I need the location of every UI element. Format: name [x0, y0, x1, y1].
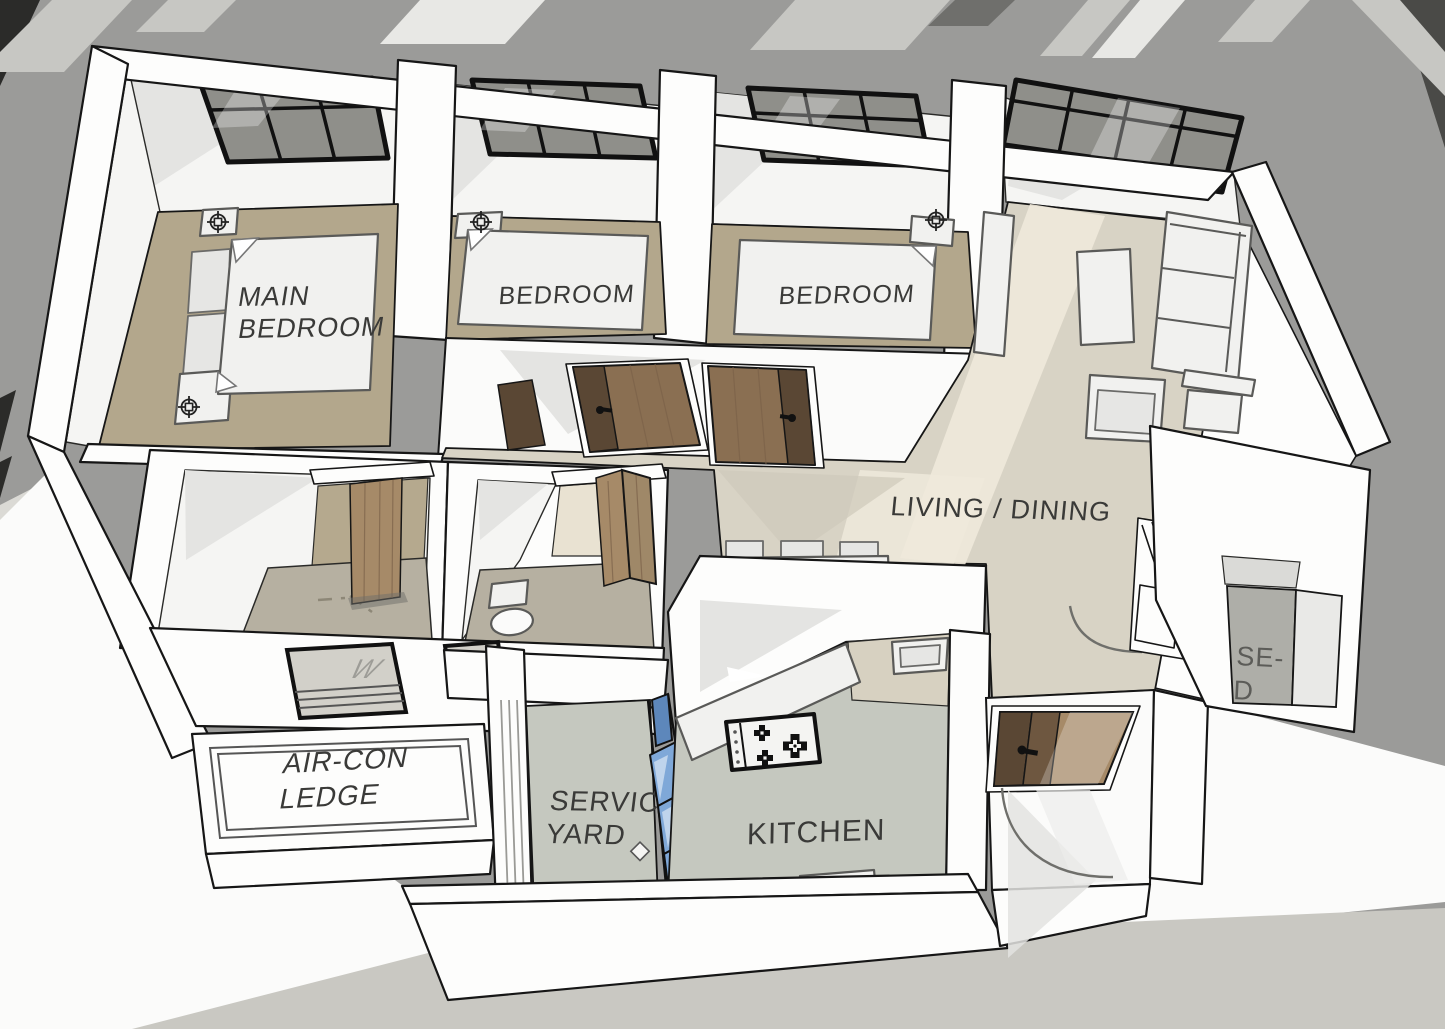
- bathroom-1-door: [348, 478, 408, 610]
- kitchen-sink: [892, 638, 948, 674]
- side-table: [1184, 390, 1242, 433]
- shelter-label-partial-1: SE-: [1236, 641, 1286, 673]
- bathroom-2: [442, 462, 668, 662]
- bedroom-2-label: BEDROOM: [497, 280, 635, 310]
- stove: [726, 714, 820, 770]
- wall-br1-br2: [390, 60, 456, 340]
- floorplan-svg: MAIN BEDROOM BEDROOM BEDROOM: [0, 0, 1445, 1029]
- shelter-back-wall: [1222, 556, 1300, 588]
- bedroom-2: BEDROOM: [446, 211, 666, 340]
- bedroom-3-door: [702, 363, 824, 468]
- bedroom-3-label: BEDROOM: [777, 280, 915, 310]
- aircon-ledge: AIR-CON LEDGE: [192, 724, 494, 888]
- bathroom-2-bifold-door: [596, 470, 656, 586]
- shelter-label-partial-2: D: [1233, 675, 1255, 706]
- louver-window-1: W: [287, 644, 406, 718]
- floorplan-scene: MAIN BEDROOM BEDROOM BEDROOM: [0, 0, 1445, 1029]
- kitchen-label: KITCHEN: [747, 814, 886, 852]
- kitchen-east-wall: [946, 630, 990, 890]
- shelter-floor-lit: [1292, 590, 1342, 707]
- main-bedroom-label-2: BEDROOM: [236, 311, 387, 344]
- coffee-table: [1077, 249, 1134, 345]
- wardrobe-panel: [188, 249, 230, 313]
- sofa: [1152, 212, 1255, 396]
- bedside-table: [200, 208, 238, 236]
- living-dining-label: LIVING / DINING: [889, 491, 1112, 527]
- bedroom-3: BEDROOM: [706, 209, 976, 348]
- aircon-ledge-label-2: LEDGE: [277, 778, 383, 815]
- kitchen: KITCHEN: [668, 556, 990, 898]
- bedroom-2-door: [566, 359, 708, 457]
- bathroom-1: [120, 450, 448, 655]
- main-bedroom-label-1: MAIN: [236, 280, 312, 312]
- service-yard-label-2: YARD: [544, 818, 627, 850]
